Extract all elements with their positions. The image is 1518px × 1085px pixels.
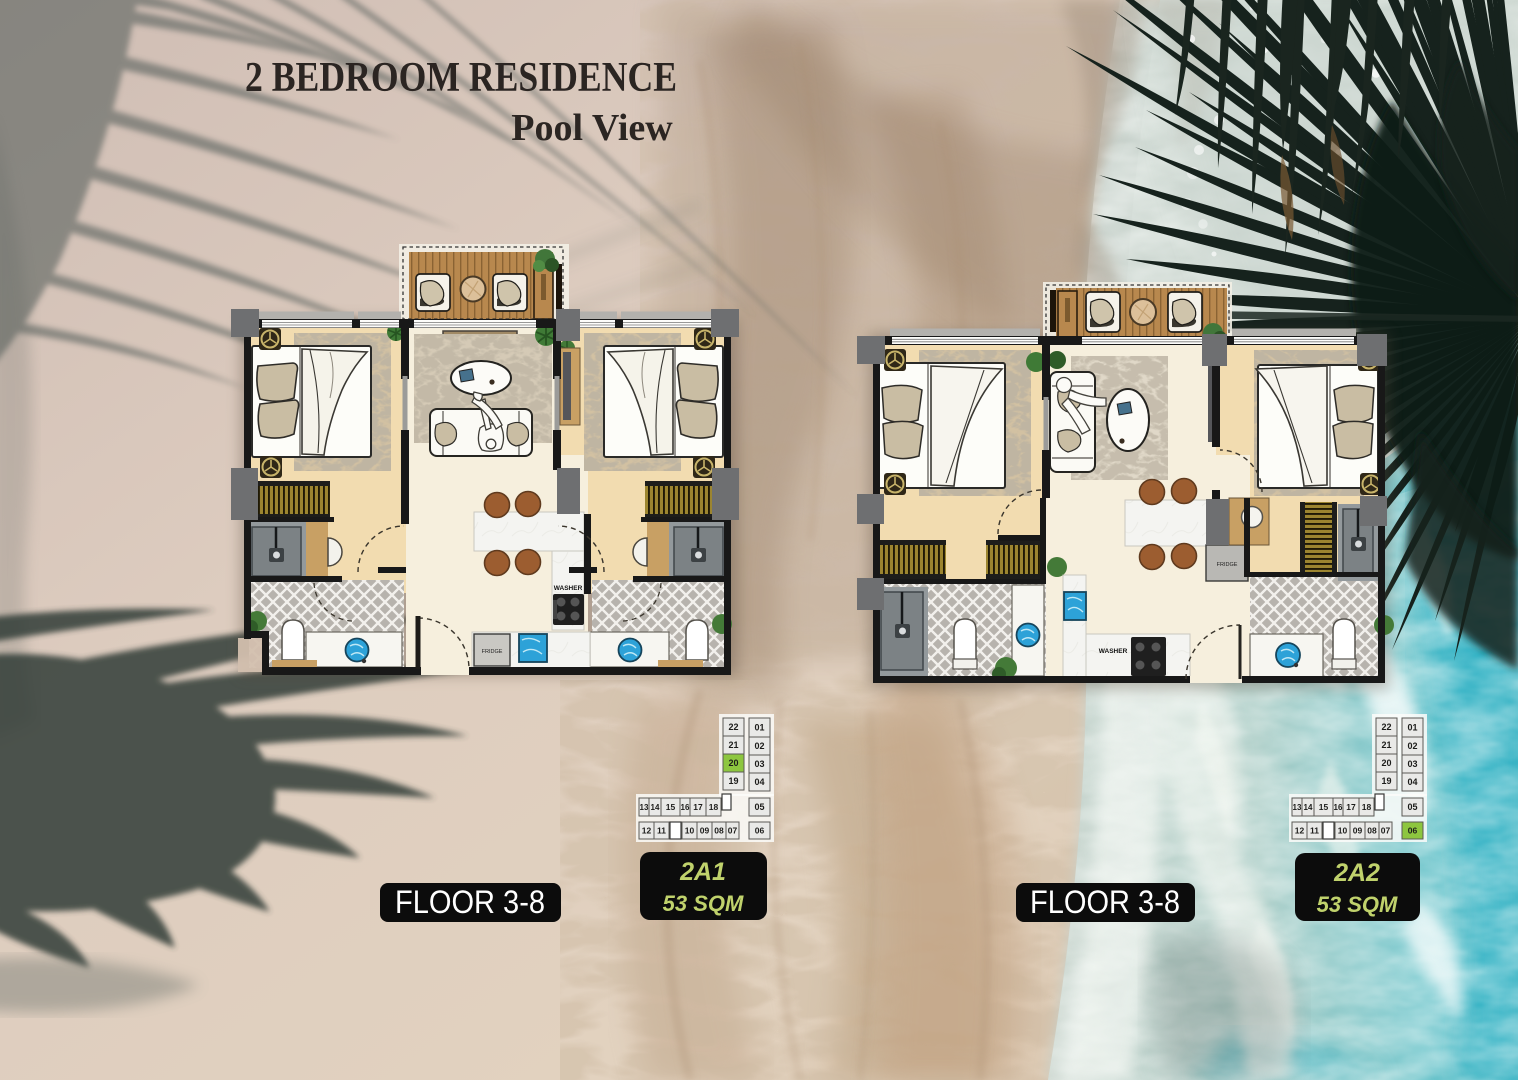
svg-text:20: 20 — [1381, 758, 1391, 768]
svg-text:02: 02 — [754, 741, 764, 751]
svg-text:19: 19 — [1381, 776, 1391, 786]
svg-text:22: 22 — [1381, 722, 1391, 732]
svg-text:15: 15 — [666, 802, 676, 812]
svg-text:17: 17 — [1346, 802, 1356, 812]
svg-text:14: 14 — [651, 803, 660, 812]
svg-text:05: 05 — [1407, 802, 1417, 812]
svg-text:07: 07 — [1381, 826, 1391, 836]
svg-text:22: 22 — [728, 722, 738, 732]
svg-text:05: 05 — [754, 802, 764, 812]
svg-text:12: 12 — [1295, 826, 1305, 836]
svg-text:WASHER: WASHER — [554, 585, 583, 592]
svg-text:09: 09 — [700, 826, 710, 836]
svg-text:03: 03 — [754, 759, 764, 769]
svg-text:08: 08 — [714, 826, 724, 836]
svg-text:06: 06 — [755, 826, 765, 836]
svg-text:2A2: 2A2 — [1333, 859, 1380, 887]
svg-text:Pool View: Pool View — [511, 107, 673, 149]
svg-text:04: 04 — [1407, 777, 1417, 787]
svg-text:53 SQM: 53 SQM — [663, 891, 744, 916]
svg-text:01: 01 — [754, 723, 764, 733]
svg-text:14: 14 — [1304, 803, 1313, 812]
svg-text:15: 15 — [1319, 802, 1329, 812]
svg-text:FRIDGE: FRIDGE — [1217, 562, 1238, 568]
svg-text:FLOOR 3-8: FLOOR 3-8 — [1030, 884, 1180, 920]
svg-text:21: 21 — [1381, 740, 1391, 750]
svg-text:10: 10 — [685, 826, 695, 836]
svg-text:08: 08 — [1367, 826, 1377, 836]
svg-text:03: 03 — [1407, 759, 1417, 769]
svg-text:53 SQM: 53 SQM — [1317, 892, 1398, 917]
svg-text:13: 13 — [640, 803, 649, 812]
svg-text:16: 16 — [681, 803, 690, 812]
svg-text:FLOOR 3-8: FLOOR 3-8 — [395, 884, 545, 920]
svg-text:2A1: 2A1 — [679, 858, 726, 886]
svg-text:18: 18 — [1362, 802, 1372, 812]
svg-text:16: 16 — [1334, 803, 1343, 812]
svg-text:2 BEDROOM RESIDENCE: 2 BEDROOM RESIDENCE — [245, 55, 677, 101]
svg-text:01: 01 — [1407, 723, 1417, 733]
svg-text:02: 02 — [1407, 741, 1417, 751]
svg-text:07: 07 — [728, 826, 738, 836]
svg-text:13: 13 — [1293, 803, 1302, 812]
svg-text:20: 20 — [728, 758, 738, 768]
svg-text:18: 18 — [709, 802, 719, 812]
svg-text:WASHER: WASHER — [1099, 648, 1128, 655]
svg-text:19: 19 — [728, 776, 738, 786]
svg-text:09: 09 — [1353, 826, 1363, 836]
svg-text:12: 12 — [642, 826, 652, 836]
svg-text:10: 10 — [1338, 826, 1348, 836]
svg-text:FRIDGE: FRIDGE — [482, 649, 503, 655]
svg-text:04: 04 — [754, 777, 764, 787]
svg-text:21: 21 — [728, 740, 738, 750]
svg-text:06: 06 — [1408, 826, 1418, 836]
svg-text:11: 11 — [657, 826, 666, 836]
svg-text:11: 11 — [1310, 826, 1319, 836]
svg-text:17: 17 — [693, 802, 703, 812]
